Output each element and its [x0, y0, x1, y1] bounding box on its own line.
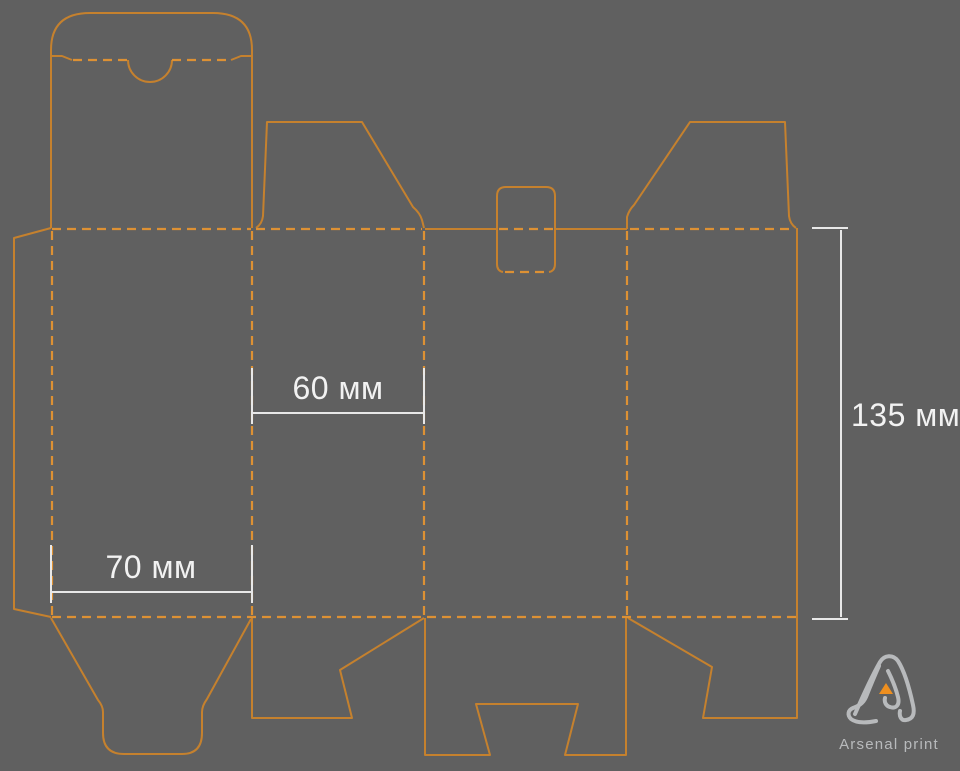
box-dieline-drawing: 60 мм 70 мм 135 мм Arsenal print: [0, 0, 960, 771]
bottom-lock-flap-right-and-side-edge: [628, 228, 797, 718]
fold-lines: [52, 60, 797, 617]
dimension-label-60mm: 60 мм: [293, 370, 384, 406]
dimension-70mm: 70 мм: [51, 545, 252, 603]
dust-flap-right-outline: [627, 122, 796, 229]
tuck-flap-notch-right: [231, 56, 252, 60]
bottom-flap-back-outline: [425, 618, 626, 755]
dimension-60mm: 60 мм: [252, 368, 424, 424]
dimension-135mm: 135 мм: [812, 228, 960, 619]
logo-text: Arsenal print: [839, 736, 939, 753]
bottom-lock-flap-left-outline: [252, 618, 424, 718]
dust-flap-left-outline: [256, 122, 424, 228]
cut-lines: [14, 13, 797, 755]
glue-flap-outline: [14, 228, 51, 617]
dimension-label-70mm: 70 мм: [106, 549, 197, 585]
tuck-flap-notch-left: [51, 56, 72, 60]
logo-accent-triangle: [879, 683, 893, 694]
dimension-135mm-ticks: [812, 228, 848, 619]
arsenal-print-logo: Arsenal print: [839, 656, 939, 753]
tuck-flap-outline: [51, 13, 252, 228]
dimension-label-135mm: 135 мм: [851, 397, 960, 433]
bottom-tongue-flap-outline: [51, 618, 251, 754]
thumb-notch-arc: [128, 60, 172, 82]
dieline-canvas: 60 мм 70 мм 135 мм Arsenal print: [0, 0, 960, 771]
